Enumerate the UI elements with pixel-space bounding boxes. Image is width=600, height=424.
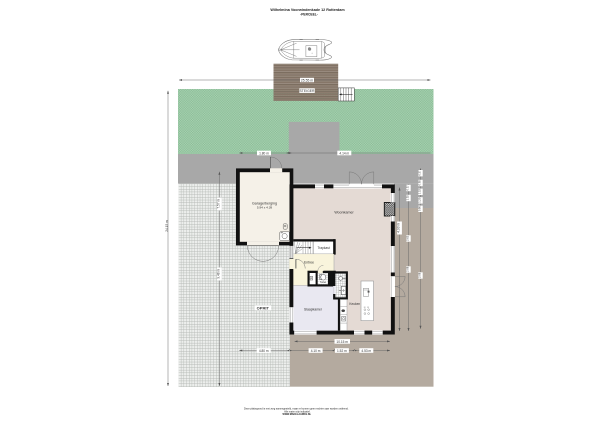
svg-text:1.52: 1.52 — [418, 189, 422, 195]
svg-text:9.48 m: 9.48 m — [216, 269, 220, 279]
svg-text:0.37: 0.37 — [418, 170, 422, 176]
svg-text:7.57 m: 7.57 m — [216, 199, 220, 209]
svg-text:Slaapkamer: Slaapkamer — [304, 308, 323, 312]
svg-text:4.80 m: 4.80 m — [259, 349, 269, 353]
svg-text:2.62: 2.62 — [406, 235, 410, 241]
svg-text:STEIGER: STEIGER — [300, 89, 315, 93]
svg-text:Toilet: Toilet — [320, 280, 327, 284]
svg-text:OPRIT: OPRIT — [257, 305, 270, 310]
svg-text:4.93 m: 4.93 m — [397, 223, 401, 233]
svg-text:Woonkamer: Woonkamer — [334, 210, 354, 214]
svg-text:0.37: 0.37 — [406, 185, 410, 191]
svg-text:Keuken: Keuken — [349, 302, 360, 306]
svg-text:4.14 m: 4.14 m — [339, 151, 349, 155]
svg-text:Wilhelmina Voorwindenkade 12 R: Wilhelmina Voorwindenkade 12 Rotterdam — [270, 8, 345, 12]
svg-text:0.80: 0.80 — [418, 206, 422, 212]
svg-text:25.55 m: 25.55 m — [301, 78, 313, 82]
svg-text:4.10 m: 4.10 m — [311, 349, 321, 353]
svg-text:Trapkast: Trapkast — [317, 246, 329, 250]
svg-text:WWW.MAKELAARDIJ.NL: WWW.MAKELAARDIJ.NL — [283, 413, 312, 416]
svg-text:1.80 m: 1.80 m — [259, 151, 269, 155]
svg-text:2.08: 2.08 — [406, 266, 410, 272]
svg-text:-PERCEEL-: -PERCEEL- — [300, 12, 318, 16]
svg-text:0.95: 0.95 — [418, 180, 422, 186]
svg-text:24.15 m: 24.15 m — [165, 220, 169, 232]
svg-text:1.20: 1.20 — [418, 197, 422, 203]
svg-text:10.15 m: 10.15 m — [336, 340, 348, 344]
svg-text:1.35: 1.35 — [406, 195, 410, 201]
svg-text:Entree: Entree — [304, 261, 314, 265]
svg-text:4.53 m: 4.53 m — [361, 349, 371, 353]
svg-text:5.94 x 4.39: 5.94 x 4.39 — [257, 206, 273, 210]
svg-text:2.08: 2.08 — [418, 272, 422, 278]
svg-text:1.52 m: 1.52 m — [337, 349, 347, 353]
